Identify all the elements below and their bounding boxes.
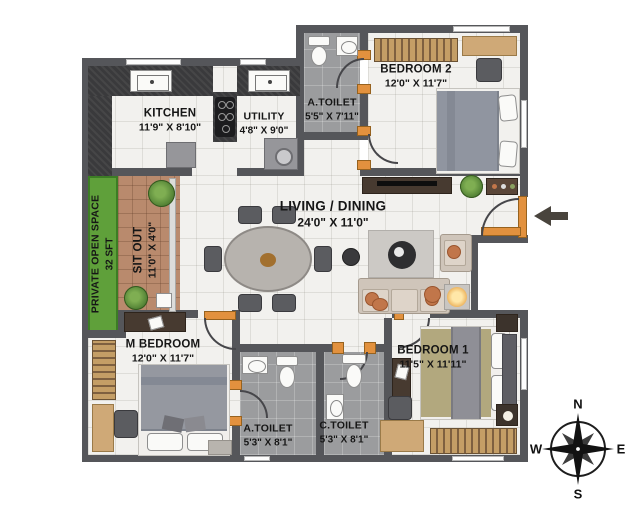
wall — [82, 58, 304, 66]
door-frame — [228, 380, 242, 390]
door-frame — [357, 160, 371, 170]
toilet-bowl-icon — [311, 46, 327, 66]
washbasin-icon — [242, 356, 268, 374]
floor-lamp-icon — [447, 287, 467, 307]
compass-star-icon — [540, 411, 616, 487]
toilet-tank-icon — [342, 354, 366, 364]
window — [126, 59, 181, 65]
headboard — [502, 334, 517, 410]
m-bedroom-name: M BEDROOM — [126, 338, 201, 353]
m-bedroom-label: M BEDROOM 12'0" X 11'7" — [126, 338, 201, 367]
private-open-space-label: PRIVATE OPEN SPACE 32 SFT — [90, 195, 117, 314]
dining-chair-icon — [314, 246, 332, 272]
dining-table-icon — [224, 226, 312, 292]
utility-label: UTILITY 4'8" X 9'0" — [240, 111, 289, 138]
desk-chair-icon — [114, 410, 138, 438]
m-bedroom-dims: 12'0" X 11'7" — [126, 353, 201, 367]
floor-plan-canvas: KITCHEN 11'9" X 8'10" UTILITY 4'8" X 9'0… — [0, 0, 640, 512]
entrance-arrow-icon — [534, 203, 568, 229]
living-dining-name: LIVING / DINING — [280, 197, 387, 215]
nightstand-icon — [496, 314, 518, 332]
private-open-space-dims: 32 SFT — [103, 195, 116, 314]
corridor-floor — [304, 140, 360, 176]
side-table-icon — [444, 284, 470, 310]
utility-sink-icon — [248, 70, 290, 92]
compass-west: W — [530, 442, 542, 457]
a-toilet-top-name: A.TOILET — [305, 97, 359, 111]
wardrobe-icon — [374, 38, 458, 62]
living-dining-label: LIVING / DINING 24'0" X 11'0" — [280, 197, 387, 230]
tv-console-icon — [362, 177, 452, 194]
entry-notch — [478, 243, 528, 310]
kitchen-name: KITCHEN — [139, 107, 201, 122]
kitchen-sink-icon — [130, 70, 172, 92]
coffee-table-icon — [368, 230, 434, 278]
kitchen-label: KITCHEN 11'9" X 8'10" — [139, 107, 201, 136]
utility-name: UTILITY — [240, 111, 289, 125]
bedroom1-dims: 11'5" X 11'11" — [397, 359, 468, 373]
step-box-icon — [156, 293, 172, 308]
kitchen-dims: 11'9" X 8'10" — [139, 122, 201, 136]
toilet-tank-icon — [308, 36, 330, 46]
pouf-icon — [424, 286, 441, 303]
compass-north: N — [573, 397, 582, 412]
window — [244, 456, 270, 461]
sit-out-name: SIT OUT — [132, 222, 147, 278]
dining-chair-icon — [272, 294, 296, 312]
a-toilet-bottom-dims: 5'3" X 8'1" — [243, 436, 292, 449]
bedroom2-dims: 12'0" X 11'7" — [380, 78, 451, 92]
double-bed-icon — [436, 88, 520, 174]
a-toilet-top-label: A.TOILET 5'5" X 7'11" — [305, 97, 359, 124]
desk-chair-icon — [476, 58, 502, 82]
dining-chair-icon — [238, 294, 262, 312]
bedroom2-label: BEDROOM 2 12'0" X 11'7" — [380, 63, 451, 92]
fridge-icon — [166, 142, 196, 168]
stool-icon — [342, 248, 360, 266]
c-toilet-label: C.TOILET 5'3" X 8'1" — [319, 420, 368, 447]
wardrobe-icon — [92, 340, 116, 400]
c-toilet-name: C.TOILET — [319, 420, 368, 434]
utility-dims: 4'8" X 9'0" — [240, 124, 289, 137]
toilet-tank-icon — [276, 356, 298, 366]
dining-chair-icon — [204, 246, 222, 272]
compass-south: S — [574, 487, 583, 502]
toilet-bowl-icon — [279, 366, 295, 388]
washing-machine-icon — [264, 138, 298, 170]
plant-icon — [148, 180, 175, 207]
tv-unit-icon — [124, 312, 186, 332]
compass-rose — [540, 411, 616, 487]
plant-icon — [124, 286, 148, 310]
nightstand-icon — [496, 404, 518, 426]
washbasin-icon — [336, 36, 358, 56]
washbasin-icon — [326, 394, 344, 420]
sit-out-dims: 11'0" X 4'0" — [147, 222, 161, 278]
desk-icon — [92, 404, 114, 452]
armchair-icon — [440, 234, 472, 272]
study-desk-icon — [462, 36, 517, 56]
a-toilet-bottom-name: A.TOILET — [243, 423, 292, 437]
window — [521, 100, 527, 148]
a-toilet-bottom-label: A.TOILET 5'3" X 8'1" — [243, 423, 292, 450]
plant-icon — [460, 175, 483, 198]
desk-chair-icon — [388, 396, 412, 420]
window — [240, 59, 266, 65]
wall — [471, 243, 478, 318]
cabinet-icon — [486, 178, 518, 195]
window — [453, 26, 510, 32]
dining-chair-icon — [238, 206, 262, 224]
rug-icon — [208, 440, 232, 455]
window — [452, 456, 504, 461]
c-toilet-dims: 5'3" X 8'1" — [319, 433, 368, 446]
sit-out-label: SIT OUT 11'0" X 4'0" — [132, 222, 161, 278]
a-toilet-top-dims: 5'5" X 7'11" — [305, 110, 359, 123]
window — [521, 338, 527, 390]
hob-icon — [215, 97, 235, 137]
wardrobe-icon — [430, 428, 517, 454]
private-open-space-name: PRIVATE OPEN SPACE — [90, 195, 104, 314]
compass-east: E — [617, 442, 626, 457]
bedroom1-label: BEDROOM 1 11'5" X 11'11" — [397, 344, 468, 373]
bedroom2-name: BEDROOM 2 — [380, 63, 451, 78]
bedroom1-name: BEDROOM 1 — [397, 344, 468, 359]
desk-icon — [380, 420, 424, 452]
kitchen-counter — [88, 96, 112, 176]
living-dining-dims: 24'0" X 11'0" — [280, 215, 387, 231]
toilet-bowl-icon — [346, 364, 362, 388]
wall — [82, 330, 126, 338]
pouf-icon — [372, 298, 388, 311]
